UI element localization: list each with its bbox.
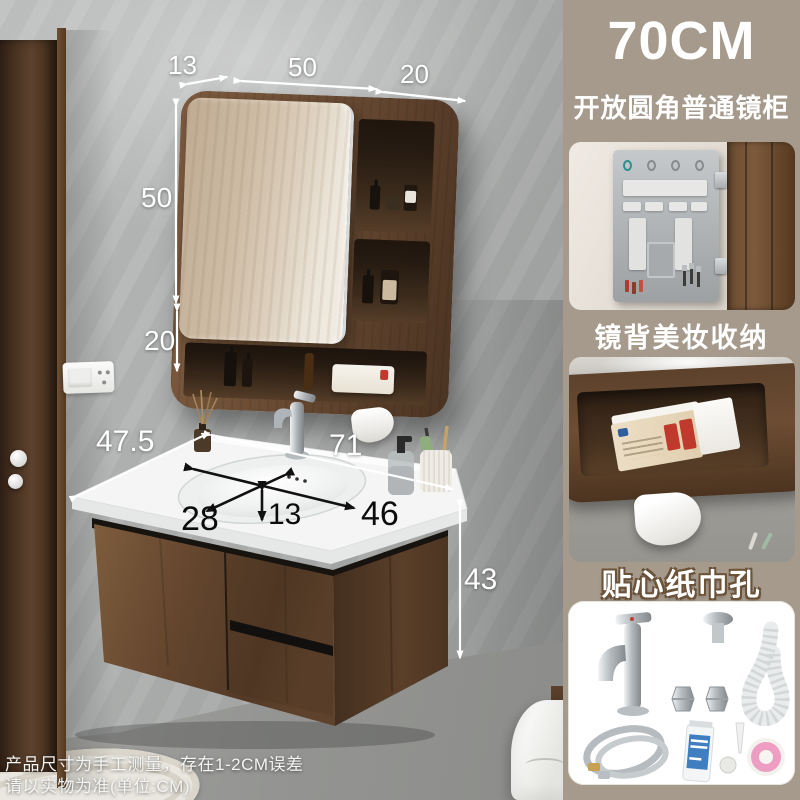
disclaimer-line-2: 请以实物为准(单位:CM) bbox=[5, 772, 190, 797]
vanity-illustration bbox=[0, 0, 563, 800]
hook-row bbox=[623, 160, 709, 172]
dim-counter-depth: 47.5 bbox=[96, 427, 154, 457]
thread-seal-tape bbox=[749, 740, 783, 774]
panel-tissue-photo bbox=[569, 357, 795, 562]
dim-mirror-offset: 13 bbox=[168, 52, 197, 78]
main-photo: 13 50 20 50 20 47.5 71 28 13 46 43 产品尺寸为… bbox=[0, 0, 563, 800]
organizer-box bbox=[669, 202, 687, 211]
round-fitting bbox=[720, 757, 736, 773]
makeup-brush bbox=[697, 271, 700, 287]
lipstick bbox=[632, 282, 636, 294]
organizer-box bbox=[623, 202, 641, 211]
organizer-box bbox=[645, 202, 663, 211]
organizer-pocket bbox=[647, 242, 675, 278]
caption-tissue-hole: 贴心纸巾孔 bbox=[563, 560, 800, 604]
dim-basin-outer-width: 46 bbox=[361, 497, 399, 531]
dim-mirror-width: 50 bbox=[288, 54, 317, 80]
makeup-brush bbox=[690, 268, 693, 284]
mirror-door-back-organizer bbox=[613, 150, 719, 302]
hex-coupling bbox=[672, 687, 728, 711]
toothbrushes bbox=[751, 532, 777, 552]
wall-shelf bbox=[569, 362, 795, 503]
tissue-box-stamp bbox=[679, 418, 697, 450]
lipstick bbox=[625, 280, 629, 292]
dim-counter-width: 71 bbox=[329, 431, 362, 461]
door-hinge bbox=[715, 258, 727, 274]
dim-basin-depth: 13 bbox=[268, 500, 301, 530]
door-hinge bbox=[715, 172, 727, 188]
faucet bbox=[598, 612, 652, 716]
tissue-box-logo bbox=[617, 428, 628, 438]
size-title: 70CM bbox=[563, 10, 800, 72]
caption-mirror-storage: 镜背美妆收纳 bbox=[563, 316, 800, 355]
tissue-box-stamp bbox=[663, 423, 680, 451]
accessories-panel bbox=[568, 601, 795, 785]
panel-mirror-storage-photo bbox=[569, 142, 795, 310]
cabinet-side-wood bbox=[727, 142, 795, 310]
dim-cabinet-height: 43 bbox=[464, 565, 497, 595]
hanging-tissue bbox=[633, 491, 702, 547]
organizer-strip bbox=[629, 218, 646, 270]
product-poster: 13 50 20 50 20 47.5 71 28 13 46 43 产品尺寸为… bbox=[0, 0, 800, 800]
soap-dispenser bbox=[388, 436, 414, 495]
dim-basin-inner-width: 28 bbox=[181, 502, 219, 536]
dim-bottom-shelf-height: 20 bbox=[144, 327, 175, 355]
makeup-brush bbox=[683, 270, 686, 286]
glue-tube bbox=[682, 720, 714, 782]
organizer-box bbox=[691, 202, 707, 211]
subtitle: 开放圆角普通镜柜 bbox=[563, 88, 800, 125]
accessories-illustration bbox=[568, 601, 795, 785]
sidebar: 70CM 开放圆角普通镜柜 bbox=[563, 0, 800, 800]
dim-mirror-height: 50 bbox=[141, 184, 172, 212]
tissue-box bbox=[609, 395, 741, 472]
dim-side-shelf-width: 20 bbox=[400, 61, 429, 87]
pop-up-drain bbox=[703, 612, 733, 643]
organizer-tray bbox=[623, 180, 707, 196]
lipstick bbox=[639, 280, 643, 292]
braided-hoses bbox=[582, 721, 669, 780]
silicone-cone bbox=[736, 723, 744, 753]
tissue-box-print bbox=[622, 436, 665, 461]
shelf-opening bbox=[577, 383, 769, 477]
cabinet-shadow bbox=[75, 721, 435, 749]
